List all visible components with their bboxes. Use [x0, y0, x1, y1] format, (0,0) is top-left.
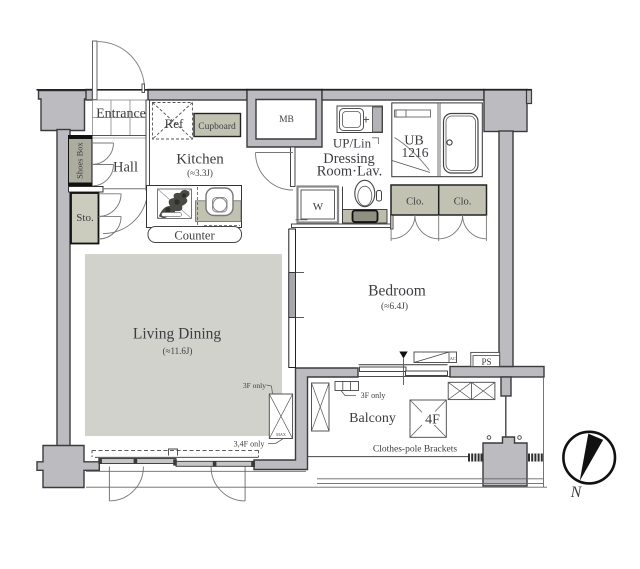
svg-text:1216: 1216: [402, 145, 429, 160]
svg-text:(≈11.6J): (≈11.6J): [163, 346, 193, 356]
svg-text:Hall: Hall: [113, 160, 138, 176]
svg-text:PS: PS: [481, 357, 491, 367]
svg-text:Balcony: Balcony: [349, 411, 396, 426]
svg-text:Cupboard: Cupboard: [198, 122, 236, 132]
svg-text:Kitchen: Kitchen: [176, 152, 224, 168]
svg-text:MAX: MAX: [276, 432, 286, 437]
svg-text:3F only: 3F only: [243, 381, 266, 390]
svg-text:Clo.: Clo.: [454, 197, 472, 208]
svg-text:UP/Lin: UP/Lin: [333, 136, 372, 151]
svg-text:Ref: Ref: [165, 116, 184, 131]
svg-text:Entrance: Entrance: [96, 107, 146, 122]
svg-text:Room·Lav.: Room·Lav.: [317, 164, 383, 180]
svg-text:(≈3.3J): (≈3.3J): [187, 168, 213, 178]
svg-text:Shoes Box: Shoes Box: [75, 141, 85, 178]
svg-text:3F only: 3F only: [361, 391, 386, 400]
svg-text:Bedroom: Bedroom: [368, 283, 426, 300]
svg-text:Living Dining: Living Dining: [133, 326, 222, 343]
svg-text:Sto.: Sto.: [76, 212, 94, 224]
svg-text:N: N: [570, 484, 583, 501]
svg-text:Counter: Counter: [174, 229, 215, 243]
svg-text:Clothes-pole Brackets: Clothes-pole Brackets: [373, 445, 457, 455]
svg-text:(≈6.4J): (≈6.4J): [381, 301, 408, 312]
svg-text:3,4F only: 3,4F only: [234, 440, 265, 449]
svg-text:4F: 4F: [425, 413, 440, 428]
svg-text:W: W: [313, 201, 324, 213]
svg-text:Clo.: Clo.: [406, 197, 424, 208]
svg-text:AC: AC: [450, 356, 456, 361]
svg-text:MB: MB: [279, 115, 294, 125]
